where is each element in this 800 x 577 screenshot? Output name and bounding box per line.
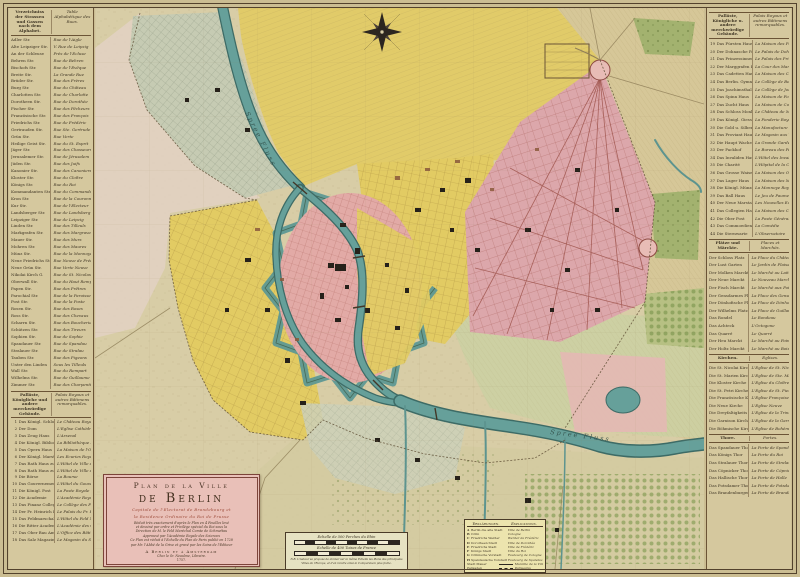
building-row: Das QuarréLe Quarré xyxy=(709,330,789,338)
scale-bar-segment xyxy=(315,541,325,544)
street-name-de: Parochial Str. xyxy=(11,293,50,300)
building-name-de: Das Königs Thor xyxy=(709,451,748,459)
scale-bar-segment xyxy=(378,541,388,544)
building-name-fr: L'Eglise de St. Pierre xyxy=(748,387,789,395)
street-row: Französische Str.Rue des François xyxy=(11,113,91,120)
building-name-fr: Le Collège de Berlin xyxy=(752,78,789,86)
building-row: 4Die Königl. BibliothekLa Bibliothèque R… xyxy=(11,440,91,447)
street-name-fr: Rue de Spandau xyxy=(50,341,91,348)
street-name-de: Post Str. xyxy=(11,299,50,306)
building-row: 38Die Königl. MünzeLa Monnoye Royale xyxy=(709,184,789,192)
building-name-fr: L'Hôtel des Invalides xyxy=(752,154,789,162)
building-name-de: Die Garnison Kirche xyxy=(709,417,748,425)
building-name-fr: La Poste Royale xyxy=(54,488,91,495)
building-name-de: Das Cadetten Haus xyxy=(717,70,753,78)
building-row: 23Das Cadetten HausLa Maison des Cadets xyxy=(709,70,789,78)
building-name-fr: Le Marché aux Poissons xyxy=(748,284,789,292)
street-name-fr: Rue de Leipzig xyxy=(50,217,91,224)
street-name-de: Gertrauden Str. xyxy=(11,127,50,134)
building-number: 40 xyxy=(709,199,717,207)
map-title-line2: de Berlin xyxy=(109,491,255,506)
street-row: Bischofs Str.Rue de l'Evêque xyxy=(11,65,91,72)
building-name-fr: Le Nouveau Marché xyxy=(748,276,789,284)
street-row: Heilige Geist Str.Rue du St. Esprit xyxy=(11,141,91,148)
street-name-fr: Rue des Frères xyxy=(50,78,91,85)
scale-bar-segment xyxy=(347,541,357,544)
street-name-de: Jäger Str. xyxy=(11,147,50,154)
street-name-fr: Rue des Maures xyxy=(50,244,91,251)
building-row: 15Das Feldmarschall HausL'Hôtel du Feld … xyxy=(11,516,91,523)
building-name-fr: L'Hôtel du Gouvernement xyxy=(54,481,91,488)
street-name-de: Tauben Str. xyxy=(11,355,50,362)
building-name-de: Der Holtz Marckt xyxy=(709,345,748,353)
building-row: Das Spandauer ThorLa Porte de Spandau xyxy=(709,444,789,452)
building-number: 32 xyxy=(709,139,717,147)
building-row: Der Dönhofische PlatzLa Place de Dönhof xyxy=(709,299,789,307)
building-name-fr: L'Eglise de Bohème xyxy=(748,425,789,433)
street-index-title-fr: Table Alphabétique des Rues. xyxy=(51,10,92,34)
building-name-fr: La Maison des Magasins xyxy=(752,177,789,185)
street-row: Neue Friedrichs Str.Rue Neuve de Frédéri… xyxy=(11,258,91,265)
street-name-fr: Rue des Juifs xyxy=(50,161,91,168)
building-name-fr: Le Bureau des Péages xyxy=(752,146,789,154)
building-row: 14Der Pr. Heinrich PalastLe Palais du Pr… xyxy=(11,509,91,516)
street-name-de: Spandauer Str. xyxy=(11,341,50,348)
building-name-de: Die Königl. Münze xyxy=(717,184,753,192)
street-name-fr: Rue de Charlotte xyxy=(50,92,91,99)
street-name-fr: Rue du Commandant xyxy=(50,189,91,196)
building-name-fr: L'Eglise Cathédrale xyxy=(54,426,91,433)
building-row: 2Der DomL'Eglise Cathédrale xyxy=(11,426,91,433)
building-row: 12Die AcademieL'Académie Royale xyxy=(11,495,91,502)
building-name-fr: La Maison des Princes xyxy=(752,40,789,48)
building-name-de: Der Königl. Marstall xyxy=(19,454,55,461)
section-title-fr: Palais Royaux et autres Bâtimens remarqu… xyxy=(749,14,790,37)
building-number: 43 xyxy=(709,222,717,230)
building-row: Das Stralauer ThorLa Porte de Stralau xyxy=(709,459,789,467)
explanations-header-de: Erklärungen. xyxy=(467,522,505,526)
street-name-de: Dorotheen Str. xyxy=(11,99,50,106)
explanations-header-fr: Explications. xyxy=(505,522,543,526)
street-name-de: Friedrichs Str. xyxy=(11,120,50,127)
street-row: Linden Str.Rue des Tilleuls xyxy=(11,223,91,230)
street-row: Tauben Str.Rue des Pigeons xyxy=(11,355,91,362)
section-title-de: Palläste, Königliche u. andere merckwürd… xyxy=(709,14,747,37)
building-name-de: Der Heu Marckt xyxy=(709,337,748,345)
street-row: Jerusalemer Str.Rue de Jérusalem xyxy=(11,154,91,161)
building-name-de: Das Zeug Haus xyxy=(19,433,55,440)
buildings-title-de: Palläste, Königliche und andere merckwür… xyxy=(11,393,49,416)
building-row: 40Der Neue MarstallLes Nouvelles Ecuries xyxy=(709,199,789,207)
building-name-fr: La Porte de Cöpnick xyxy=(748,467,789,475)
street-name-de: Adler Str. xyxy=(11,37,50,44)
street-name-fr: Rue des Chasseurs xyxy=(50,147,91,154)
building-number: 2 xyxy=(11,426,19,433)
building-row: 30Die Gold u. Silber Manuf.La Manufactur… xyxy=(709,124,789,132)
street-row: Ross Str.Rue des Chevaux xyxy=(11,313,91,320)
building-row: 29Das Königl. Giess HausLa Fonderie Roya… xyxy=(709,116,789,124)
street-row: Nikolai Kirch G.Rue de St. Nicolas xyxy=(11,272,91,279)
legend-section-header: Palläste, Königliche u. andere merckwürd… xyxy=(709,12,789,39)
scale-bar-segment xyxy=(375,552,387,555)
building-number: 9 xyxy=(11,474,19,481)
street-name-de: Unter den Linden xyxy=(11,362,50,369)
building-name-de: Die Ober Post xyxy=(717,215,753,223)
building-number: 16 xyxy=(11,523,19,530)
left-building-rows: 1Das Königl. SchlossLe Château Royal2Der… xyxy=(11,419,91,543)
map-title-line1: Plan de la Ville xyxy=(109,481,255,490)
street-name-fr: Rue de l'Electeur xyxy=(50,203,91,210)
street-name-de: Alte Leipziger Str. xyxy=(11,44,50,51)
building-name-de: Der Marggrafen Hof xyxy=(717,63,753,71)
title-cartouche-inner: Plan de la Ville de Berlin Capitale de l… xyxy=(106,477,258,565)
left-legend-header: Verzeichniss der Strassen und Gassen nac… xyxy=(11,10,91,36)
street-row: Münz Str.Rue de la Monnoye xyxy=(11,251,91,258)
building-row: 13Das Finanz CollegiumLe Collège des Fin… xyxy=(11,502,91,509)
building-name-fr: Le Jeu de Paume xyxy=(752,192,789,200)
section-title-fr: Portes. xyxy=(749,436,790,441)
building-row: Das Brandenburger ThorLa Porte de Brande… xyxy=(709,489,789,497)
building-row: Der Molken MarcktLe Marché au Lait xyxy=(709,269,789,277)
building-number: 41 xyxy=(709,207,717,215)
legend-line-sample-row: PalisadenPalissades xyxy=(467,566,543,570)
building-name-fr: La Place des Gensdarmes xyxy=(748,292,789,300)
building-name-de: Der Pr. Heinrich Palast xyxy=(19,509,55,516)
building-number: 39 xyxy=(709,192,717,200)
building-name-fr: L'Eglise de Ste. Marie xyxy=(748,372,789,380)
street-name-fr: Rue de Frédéric xyxy=(50,120,91,127)
building-row: Das Königs ThorLa Porte du Roi xyxy=(709,451,789,459)
building-row: Die St. Nicolai KircheL'Eglise de St. Ni… xyxy=(709,364,789,372)
street-name-de: Ross Str. xyxy=(11,313,50,320)
building-name-de: Das Zucht Haus xyxy=(717,101,753,109)
section-title-de: Kirchen. xyxy=(709,356,747,361)
street-row: Scharrn Str.Rue des Boucheries xyxy=(11,320,91,327)
building-number: 24 xyxy=(709,78,717,86)
building-name-de: Das Prinzessinnen Haus xyxy=(717,55,753,63)
street-name-fr: Rue de Dorothée xyxy=(50,99,91,106)
building-name-fr: Le Magasin aux Vivres xyxy=(752,131,789,139)
building-name-de: Das Ober Bau Amt xyxy=(19,530,55,537)
building-number: 29 xyxy=(709,116,717,124)
street-row: Schützen Str.Rue des Tireurs xyxy=(11,327,91,334)
building-row: Die Böhmische KircheL'Eglise de Bohème xyxy=(709,425,789,433)
building-name-fr: L'Eglise de St. Nicolas xyxy=(748,364,789,372)
legend-section-header: Kirchen.Eglises. xyxy=(709,354,789,363)
building-row: 9Die BörseLa Bourse xyxy=(11,474,91,481)
street-row: Leipziger Str.Rue de Leipzig xyxy=(11,217,91,224)
street-row: Zimmer Str.Rue des Charpentiers xyxy=(11,382,91,389)
building-name-de: Die Ritter Academie xyxy=(19,523,55,530)
street-name-fr: Rue des Charpentiers xyxy=(50,382,91,389)
street-name-de: Jüden Str. xyxy=(11,161,50,168)
street-name-fr: Rue de Guillaume xyxy=(50,375,91,382)
street-row: Jüden Str.Rue des Juifs xyxy=(11,161,91,168)
scale-bar-segment xyxy=(329,552,341,555)
building-name-de: Das Quarré xyxy=(709,330,748,338)
building-name-de: Der Neue Marckt xyxy=(709,276,748,284)
building-number: 4 xyxy=(11,440,19,447)
building-name-fr: La Fonderie Royale xyxy=(752,116,789,124)
street-name-fr: Rue des Tilleuls xyxy=(50,223,91,230)
building-name-fr: Le Marché au Bois xyxy=(748,345,789,353)
street-row: Papen Str.Rue des Prêtres xyxy=(11,286,91,293)
building-name-de: Die Sternwarte xyxy=(717,230,753,238)
street-row: Behren Str.Rue de Behren xyxy=(11,58,91,65)
scale-bar-toises xyxy=(294,551,400,556)
street-row: Markgrafen Str.Rue des Margraves xyxy=(11,230,91,237)
building-name-de: Die Dreyfaltigkeits K. xyxy=(709,409,748,417)
scale-bar-segment xyxy=(326,541,336,544)
building-name-de: Das Feldmarschall Haus xyxy=(19,516,55,523)
building-name-fr: L'Académie des Chevaliers xyxy=(54,523,91,530)
street-row: Mauer Str.Rue des Murs xyxy=(11,237,91,244)
scale-label-toises: Echelle de 400 Toises de France xyxy=(286,546,407,551)
scale-bar-perches xyxy=(294,540,400,545)
building-row: 21Das Prinzessinnen HausLe Palais des Pr… xyxy=(709,55,789,63)
building-name-de: Die Königl. Post xyxy=(19,488,55,495)
street-name-fr: Rue de Stralau xyxy=(50,348,91,355)
street-name-de: Jerusalemer Str. xyxy=(11,154,50,161)
building-row: Die Dreyfaltigkeits K.L'Eglise de la Tri… xyxy=(709,409,789,417)
street-name-de: Kur Str. xyxy=(11,203,50,210)
building-name-de: Der Packhof xyxy=(717,146,753,154)
building-row: Der Gensdarmes PlatzLa Place des Gensdar… xyxy=(709,292,789,300)
building-name-fr: L'Hôpital de la Charité xyxy=(752,161,789,169)
building-row: 28Das Schloss MonbijouLe Château de Monb… xyxy=(709,108,789,116)
street-name-de: Zimmer Str. xyxy=(11,382,50,389)
street-name-fr: Rue des Tireurs xyxy=(50,327,91,334)
building-name-fr: La Place de Guillaume xyxy=(748,307,789,315)
antique-map-page: Spree Fluss Spree Fluss Plan de la Ville… xyxy=(0,0,800,577)
building-name-fr: Le Palais de Dohna xyxy=(752,48,789,56)
building-name-fr: Le Magasin du Sel xyxy=(54,537,91,544)
street-name-de: Mohren Str. xyxy=(11,244,50,251)
building-number: 23 xyxy=(709,70,717,78)
street-name-fr: Rue des François xyxy=(50,113,91,120)
scale-bar-segment xyxy=(352,552,364,555)
building-row: 37Das Lager HausLa Maison des Magasins xyxy=(709,177,789,185)
scale-bar-segment xyxy=(295,552,307,555)
street-row: Unter den LindenSous les Tilleuls xyxy=(11,362,91,369)
building-row: 42Die Ober PostLa Poste Générale xyxy=(709,215,789,223)
scale-bar-segment xyxy=(318,552,330,555)
street-name-fr: Rue du St. Esprit xyxy=(50,141,91,148)
scale-bar-segment xyxy=(341,552,353,555)
building-name-fr: L'Hôtel du Feld Maréchal xyxy=(54,516,91,523)
building-name-fr: L'Hôtel de Ville de Berlin xyxy=(54,461,91,468)
street-name-de: Neue Grün Str. xyxy=(11,265,50,272)
street-row: Parochial Str.Rue de la Paroisse xyxy=(11,293,91,300)
building-number: 26 xyxy=(709,93,717,101)
building-name-de: Das Rath Haus zu Cölln xyxy=(19,468,55,475)
building-name-de: Der Gensdarmes Platz xyxy=(709,292,748,300)
building-name-fr: La Comédie xyxy=(752,222,789,230)
building-row: 22Der Marggrafen HofLa Cour des Margrave… xyxy=(709,63,789,71)
street-name-fr: Rue de la Monnoye xyxy=(50,251,91,258)
building-name-fr: La Bibliothèque Royale xyxy=(54,440,91,447)
building-name-de: Die St. Marien Kirche xyxy=(709,372,748,380)
building-row: 5Das Opern HausLa Maison de l'Opéra xyxy=(11,447,91,454)
street-name-fr: Rue des Boucheries xyxy=(50,320,91,327)
building-row: 33Der PackhofLe Bureau des Péages xyxy=(709,146,789,154)
building-name-de: Die Königl. Bibliothek xyxy=(19,440,55,447)
section-title-de: Plätze und Märckte. xyxy=(709,241,747,250)
street-name-de: Heilige Geist Str. xyxy=(11,141,50,148)
building-row: 16Die Ritter AcademieL'Académie des Chev… xyxy=(11,523,91,530)
building-number: 18 xyxy=(11,537,19,544)
street-row: Neue Grün Str.Rue Verte Neuve xyxy=(11,265,91,272)
scale-note: N.B. L'Auteur se propose de donner sur l… xyxy=(286,557,407,565)
building-number: 3 xyxy=(11,433,19,440)
street-name-de: Kanonier Str. xyxy=(11,168,50,175)
building-name-fr: L'Eglise Françoise xyxy=(748,394,789,402)
street-name-de: Fischer Str. xyxy=(11,106,50,113)
building-name-de: Die Börse xyxy=(19,474,55,481)
street-name-de: Münz Str. xyxy=(11,251,50,258)
building-row: Der Fisch MarcktLe Marché aux Poissons xyxy=(709,284,789,292)
street-row: Wall Str.Rue du Rempart xyxy=(11,368,91,375)
building-name-de: Die Kloster Kirche xyxy=(709,379,748,387)
legend-section-header: Thore.Portes. xyxy=(709,434,789,443)
building-name-fr: L'Eglise de la Trinité xyxy=(748,409,789,417)
building-name-de: Der Neue Marstall xyxy=(717,199,753,207)
street-name-fr: Rue de St. Nicolas xyxy=(50,272,91,279)
street-row: Brüder Str.Rue des Frères xyxy=(11,78,91,85)
street-row: Sophien Str.Rue de Sophie xyxy=(11,334,91,341)
building-row: 27Das Zucht HausLa Maison de Correction xyxy=(709,101,789,109)
street-index-title-de: Verzeichniss der Strassen und Gassen nac… xyxy=(11,10,49,34)
building-name-de: Das Ball Haus xyxy=(717,192,753,200)
building-row: Der Schloss PlatzLa Place du Château xyxy=(709,254,789,262)
street-name-fr: V. Rue de Leipzig xyxy=(50,44,91,51)
building-name-de: Das Königl. Giess Haus xyxy=(717,116,753,124)
building-name-fr: La Maison de Correction xyxy=(752,101,789,109)
building-number: 10 xyxy=(11,481,19,488)
legend-section-header: Plätze und Märckte.Places et Marchés. xyxy=(709,239,789,252)
street-name-de: Oberwall Str. xyxy=(11,279,50,286)
building-name-de: Die Charité xyxy=(717,161,753,169)
building-number: 22 xyxy=(709,63,717,71)
building-name-fr: La Porte de Halle xyxy=(748,474,789,482)
street-name-de: Französische Str. xyxy=(11,113,50,120)
building-row: 24Das Berlin. GymnasiumLe Collège de Ber… xyxy=(709,78,789,86)
building-row: Der Lust GartenLe Jardin de Plaisance xyxy=(709,261,789,269)
building-name-fr: La Grande Garde xyxy=(752,139,789,147)
street-name-fr: Rue Ste. Gertrude xyxy=(50,127,91,134)
street-row: Oberwall Str.Rue du Haut Rempart xyxy=(11,279,91,286)
building-name-fr: L'Eglise du Cloître xyxy=(748,379,789,387)
street-row: Gertrauden Str.Rue Ste. Gertrude xyxy=(11,127,91,134)
building-number: 38 xyxy=(709,184,717,192)
building-name-de: Das Fürsten Haus xyxy=(717,40,753,48)
street-name-de: Neue Friedrichs Str. xyxy=(11,258,50,265)
building-name-de: Der Dohnasche Palast xyxy=(717,48,753,56)
street-name-de: Leipziger Str. xyxy=(11,217,50,224)
street-name-de: Stralauer Str. xyxy=(11,348,50,355)
building-row: Die St. Petri KircheL'Eglise de St. Pier… xyxy=(709,387,789,395)
street-name-fr: Rue de Behren xyxy=(50,58,91,65)
building-name-de: Das Rondel xyxy=(709,314,748,322)
street-row: Burg Str.Rue du Château xyxy=(11,85,91,92)
scale-bar-segment xyxy=(364,552,376,555)
street-name-de: Breite Str. xyxy=(11,72,50,79)
building-name-de: Die Academie xyxy=(19,495,55,502)
section-title-de: Thore. xyxy=(709,436,747,441)
street-row: Dorotheen Str.Rue de Dorothée xyxy=(11,99,91,106)
street-name-de: Scharrn Str. xyxy=(11,320,50,327)
building-row: Die Neue KircheL'Eglise Neuve xyxy=(709,402,789,410)
street-name-fr: Rue des Margraves xyxy=(50,230,91,237)
street-name-de: Schützen Str. xyxy=(11,327,50,334)
building-number: 5 xyxy=(11,447,19,454)
street-name-fr: Rue de la Paroisse xyxy=(50,293,91,300)
building-row: 3Das Zeug HausL'Arsenal xyxy=(11,433,91,440)
explanations-header: Erklärungen. Explications. xyxy=(467,522,543,527)
building-name-de: Das Spinn Haus xyxy=(717,93,753,101)
street-name-fr: Rue Neuve de Frédéric xyxy=(50,258,91,265)
building-number: 19 xyxy=(709,40,717,48)
building-name-fr: Le Palais du Pr. Henri xyxy=(54,509,91,516)
building-name-de: Das Proviant Haus xyxy=(717,131,753,139)
building-row: 39Das Ball HausLe Jeu de Paume xyxy=(709,192,789,200)
scale-bar-segment xyxy=(336,541,346,544)
building-name-fr: La Maison des Collèges xyxy=(752,207,789,215)
building-row: Das RondelLe Rondeau xyxy=(709,314,789,322)
scale-bar-segment xyxy=(357,541,367,544)
street-row: An der SchleusePrès de l'Ecluse xyxy=(11,51,91,58)
building-number: 13 xyxy=(11,502,19,509)
street-name-fr: Rue Verte xyxy=(50,134,91,141)
building-name-fr: Les Nouvelles Ecuries xyxy=(752,199,789,207)
building-name-fr: Le Château de Monbijou xyxy=(752,108,789,116)
cartouche-body-line: par Mr. l'Abbé de la Grive et gravé par … xyxy=(109,543,255,547)
building-number: 42 xyxy=(709,215,717,223)
building-name-fr: La Porte de Potsdam xyxy=(748,482,789,490)
building-name-fr: Le Collège des Finances xyxy=(54,502,91,509)
building-name-de: Das Spandauer Thor xyxy=(709,444,748,452)
building-name-fr: L'Eglise Neuve xyxy=(748,402,789,410)
building-name-fr: La Maison de l'Opéra xyxy=(54,447,91,454)
building-name-de: Das Hallische Thor xyxy=(709,474,748,482)
building-name-de: Die Gold u. Silber Manuf. xyxy=(717,124,753,132)
building-name-de: Das Grosse Waisen Haus xyxy=(717,169,753,177)
building-row: 17Das Ober Bau AmtL'Office des Bâtimens xyxy=(11,530,91,537)
street-name-de: Königs Str. xyxy=(11,182,50,189)
explanation-rows: ABerlin die alte StadtVille de BerlinBCö… xyxy=(467,528,543,571)
map-subtitle-1: Capitale de l'Electorat de Brandebourg e… xyxy=(109,507,255,512)
building-name-fr: La Bourse xyxy=(54,474,91,481)
building-name-fr: La Manufacture d'Or xyxy=(752,124,789,132)
building-name-de: Der Wilhelms Platz xyxy=(709,307,748,315)
street-row: Charlotten Str.Rue de Charlotte xyxy=(11,92,91,99)
building-name-fr: Le Collège de Joachimsthal xyxy=(752,86,789,94)
building-number: 27 xyxy=(709,101,717,109)
building-name-fr: La Porte du Roi xyxy=(748,451,789,459)
scale-bar-segment xyxy=(388,541,398,544)
street-name-de: Burg Str. xyxy=(11,85,50,92)
scale-bar-segment xyxy=(305,541,315,544)
street-name-de: Kron Str. xyxy=(11,196,50,203)
building-name-fr: Le Jardin de Plaisance xyxy=(748,261,789,269)
line-sample xyxy=(499,568,513,569)
building-row: Das Hallische ThorLa Porte de Halle xyxy=(709,474,789,482)
buildings-title-fr: Palais Royaux et autres Bâtimens remarqu… xyxy=(51,393,92,416)
building-number: 31 xyxy=(709,131,717,139)
building-name-fr: La Cour des Margraves xyxy=(752,63,789,71)
map-subtitle-2: la Residence Ordinaire du Roi de Prusse xyxy=(109,514,255,519)
building-name-fr: Le Quarré xyxy=(748,330,789,338)
